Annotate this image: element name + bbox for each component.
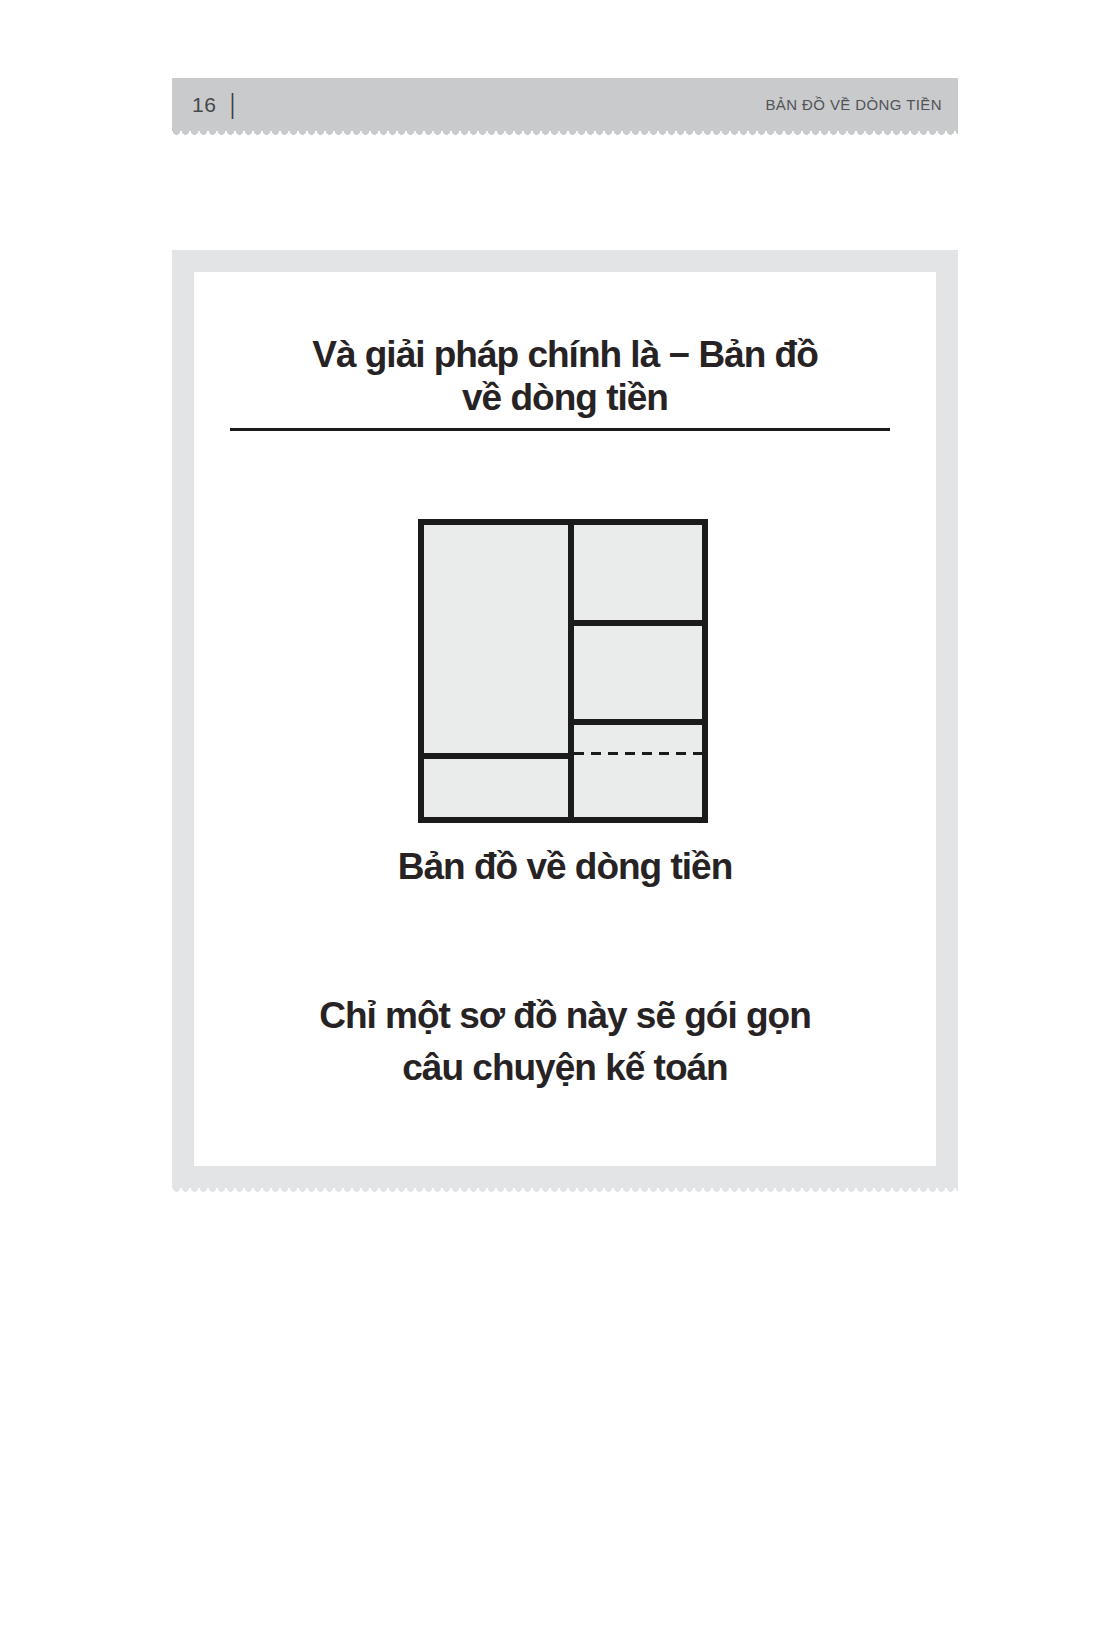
cash-flow-map-diagram [418,519,708,823]
slide-panel: Và giải pháp chính là − Bản đồ về dòng t… [194,272,936,1166]
diagram-cell-left-bottom [424,759,568,817]
slide-title-line1: Và giải pháp chính là − Bản đồ [194,333,936,376]
book-page: 16 | BẢN ĐỒ VỀ DÒNG TIỀN Và giải pháp ch… [0,0,1119,1646]
running-title: BẢN ĐỒ VỀ DÒNG TIỀN [765,96,942,113]
slide-body-text: Chỉ một sơ đồ này sẽ gói gọn câu chuyện … [194,990,936,1094]
slide-title: Và giải pháp chính là − Bản đồ về dòng t… [194,333,936,419]
slide-body-line2: câu chuyện kế toán [194,1042,936,1094]
diagram-cell-left-top [424,525,568,753]
slide-body-line1: Chỉ một sơ đồ này sẽ gói gọn [194,990,936,1042]
slide-frame: Và giải pháp chính là − Bản đồ về dòng t… [172,250,958,1188]
page-number-group: 16 | [192,91,236,118]
diagram-cell-right-middle [574,626,702,719]
diagram-dashed-divider [574,752,702,755]
title-underline-rule [230,428,890,431]
diagram-cell-right-bottom [574,725,702,817]
page-number: 16 [192,93,216,117]
page-header-bar: 16 | BẢN ĐỒ VỀ DÒNG TIỀN [172,78,958,131]
slide-title-line2: về dòng tiền [194,376,936,419]
diagram-caption: Bản đồ về dòng tiền [194,845,936,889]
diagram-cell-right-top [574,525,702,620]
page-number-separator: | [230,91,235,118]
